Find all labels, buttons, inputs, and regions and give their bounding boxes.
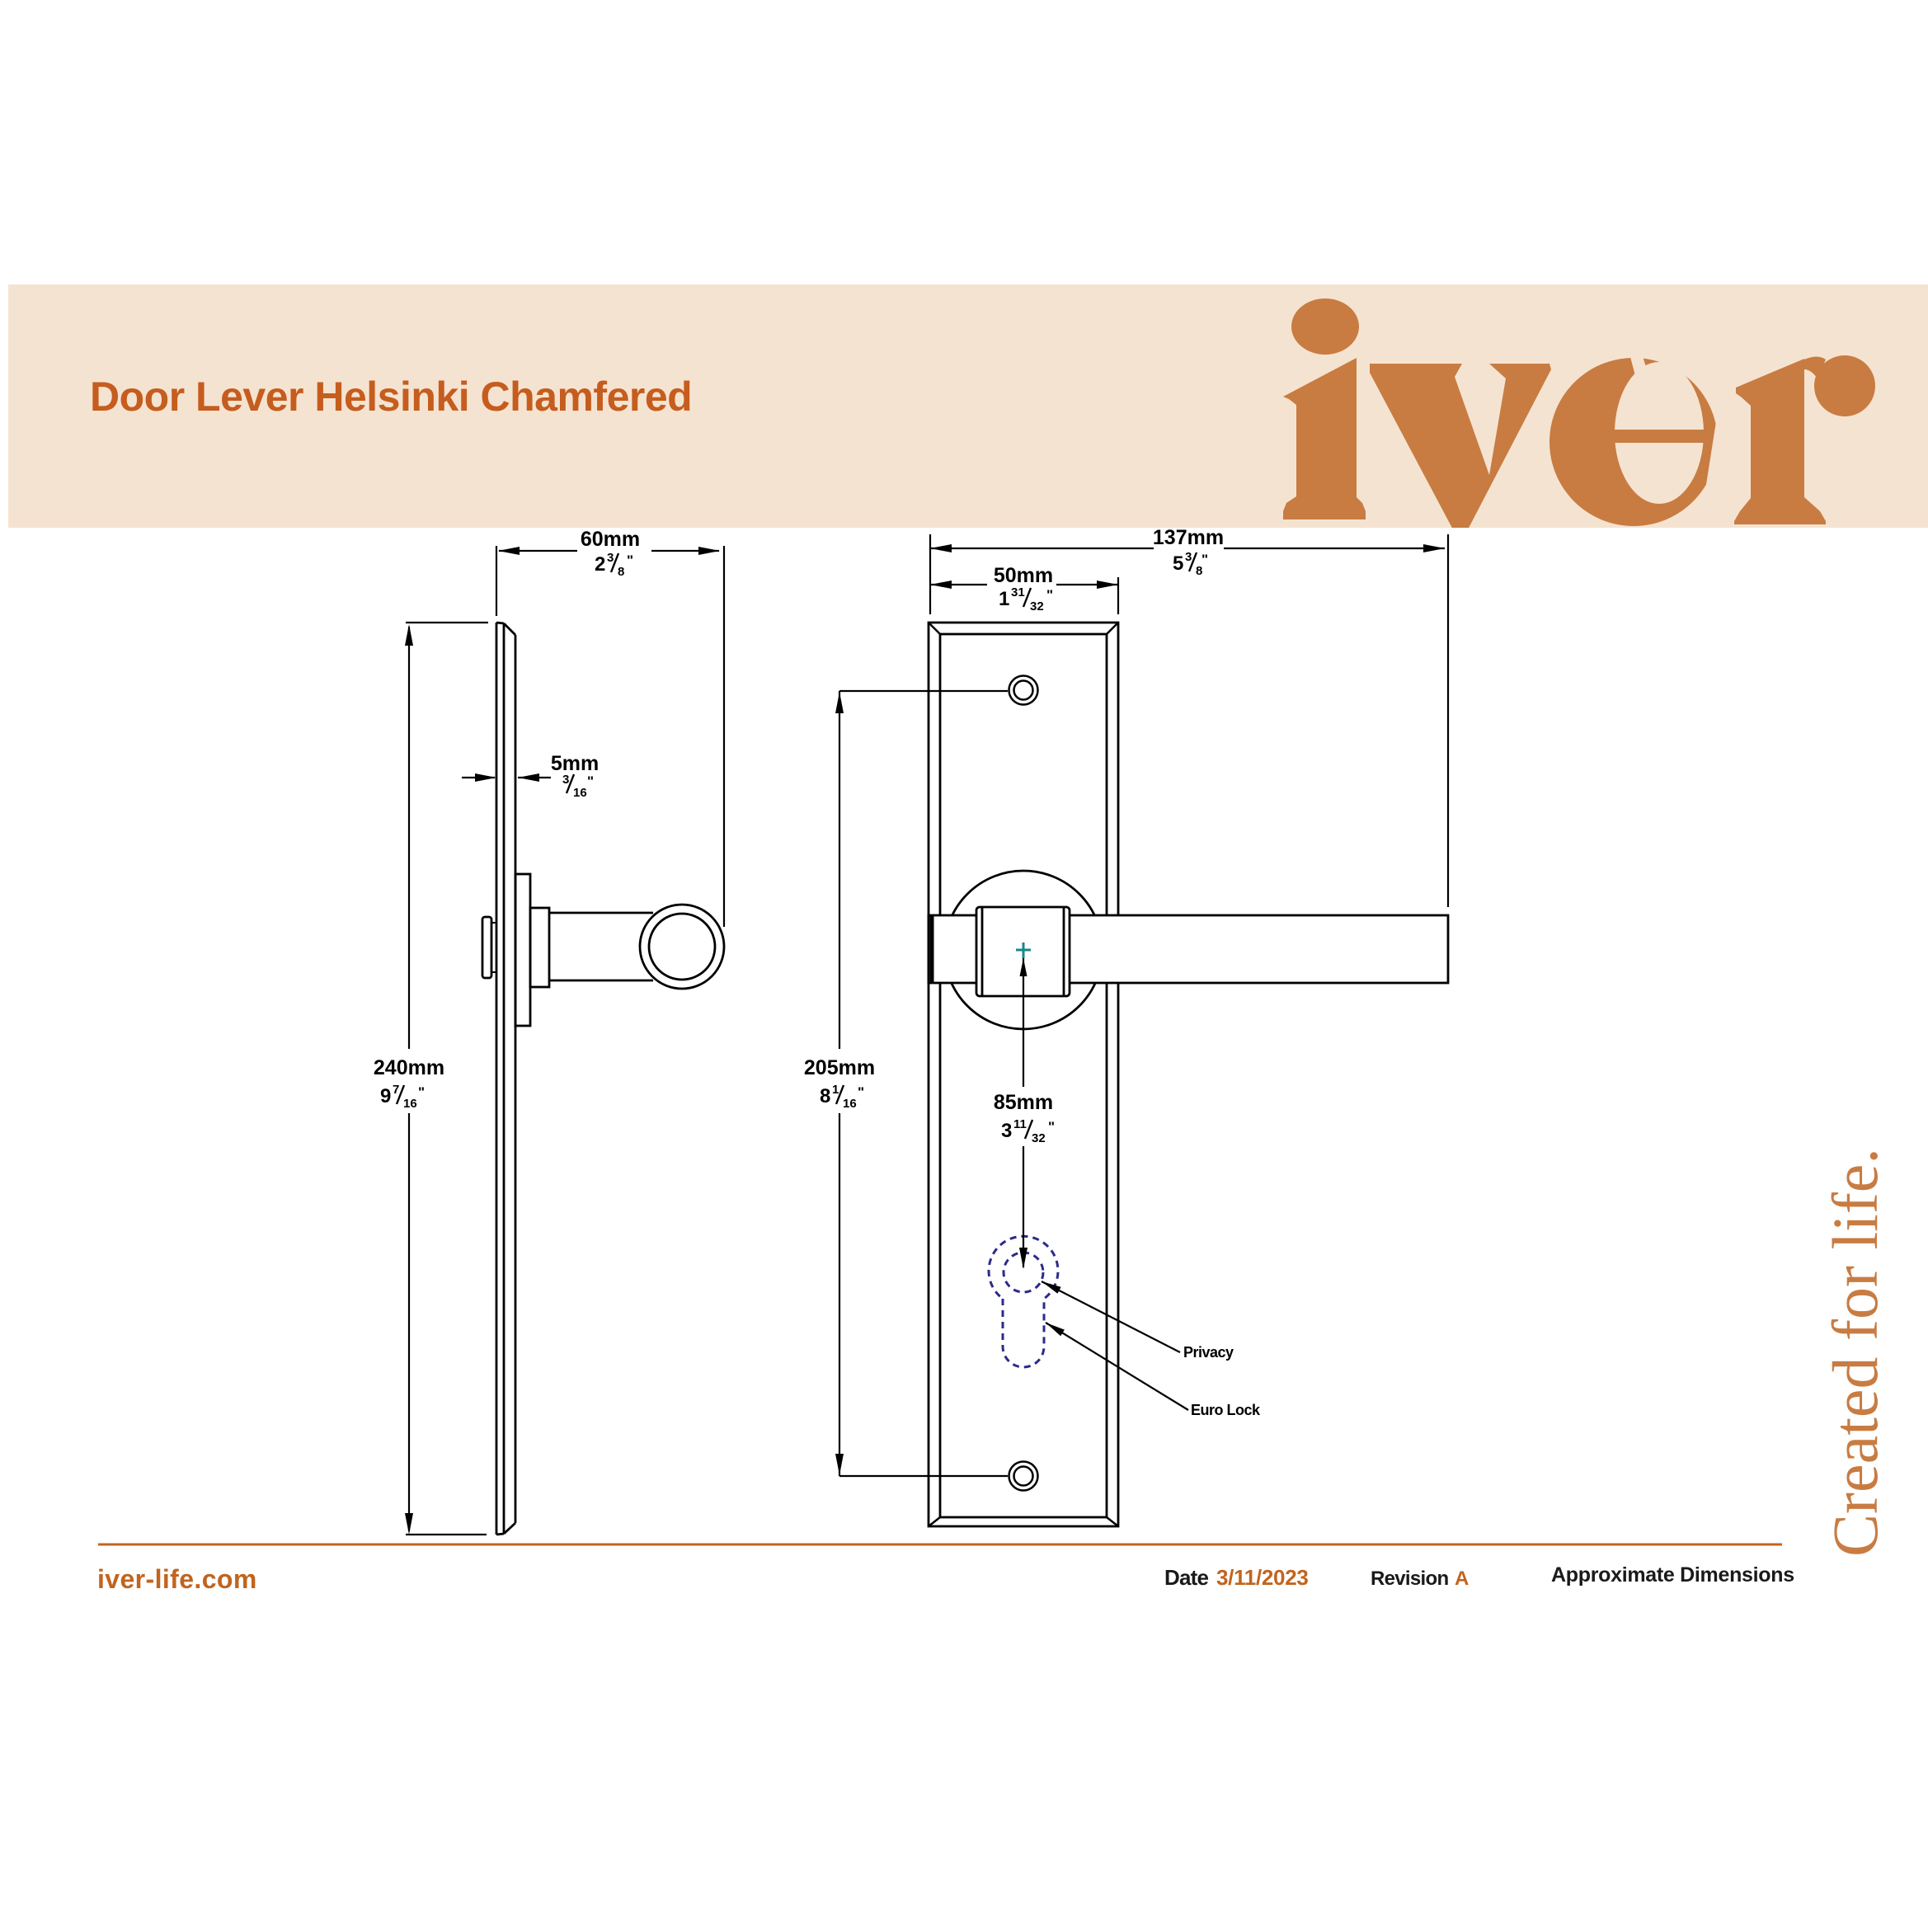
svg-text:16: 16 xyxy=(573,786,587,800)
svg-text:": " xyxy=(1048,1119,1055,1135)
svg-text:Approximate Dimensions: Approximate Dimensions xyxy=(1551,1563,1794,1586)
svg-text:8: 8 xyxy=(820,1085,830,1107)
svg-text:8: 8 xyxy=(618,565,624,579)
svg-text:32: 32 xyxy=(1030,599,1044,613)
svg-text:137mm: 137mm xyxy=(1153,526,1224,549)
svg-text:3/11/2023: 3/11/2023 xyxy=(1216,1565,1309,1590)
svg-text:Date: Date xyxy=(1164,1565,1208,1590)
svg-text:Created for life.: Created for life. xyxy=(1819,1148,1891,1557)
svg-text:Revision: Revision xyxy=(1371,1568,1448,1590)
svg-text:3: 3 xyxy=(1185,550,1192,564)
svg-text:31: 31 xyxy=(1011,585,1025,599)
svg-text:205mm: 205mm xyxy=(804,1056,875,1079)
svg-text:5: 5 xyxy=(1173,552,1183,575)
svg-text:240mm: 240mm xyxy=(374,1056,444,1079)
svg-text:1: 1 xyxy=(999,588,1009,610)
svg-text:A: A xyxy=(1455,1568,1469,1590)
svg-text:50mm: 50mm xyxy=(994,564,1053,587)
svg-text:60mm: 60mm xyxy=(581,528,640,551)
svg-text:Privacy: Privacy xyxy=(1183,1344,1234,1361)
svg-text:": " xyxy=(418,1084,425,1100)
svg-text:16: 16 xyxy=(843,1097,857,1111)
svg-text:9: 9 xyxy=(380,1085,391,1107)
svg-text:iver-life.com: iver-life.com xyxy=(97,1564,257,1594)
svg-text:2: 2 xyxy=(595,553,605,576)
svg-text:": " xyxy=(1046,587,1053,603)
svg-text:1: 1 xyxy=(832,1083,839,1097)
svg-text:": " xyxy=(1201,552,1208,567)
svg-text:3: 3 xyxy=(562,773,569,787)
svg-text:16: 16 xyxy=(403,1097,417,1111)
svg-text:Euro Lock: Euro Lock xyxy=(1191,1402,1261,1418)
svg-text:": " xyxy=(587,773,594,789)
svg-text:": " xyxy=(627,552,633,568)
svg-text:85mm: 85mm xyxy=(994,1091,1053,1114)
svg-text:32: 32 xyxy=(1032,1131,1046,1145)
svg-text:Door Lever Helsinki Chamfered: Door Lever Helsinki Chamfered xyxy=(90,374,692,420)
svg-text:3: 3 xyxy=(1001,1120,1012,1142)
svg-text:3: 3 xyxy=(607,551,614,565)
svg-text:7: 7 xyxy=(393,1083,399,1097)
svg-text:11: 11 xyxy=(1013,1117,1027,1131)
svg-text:5mm: 5mm xyxy=(551,752,599,775)
svg-text:": " xyxy=(858,1084,864,1100)
